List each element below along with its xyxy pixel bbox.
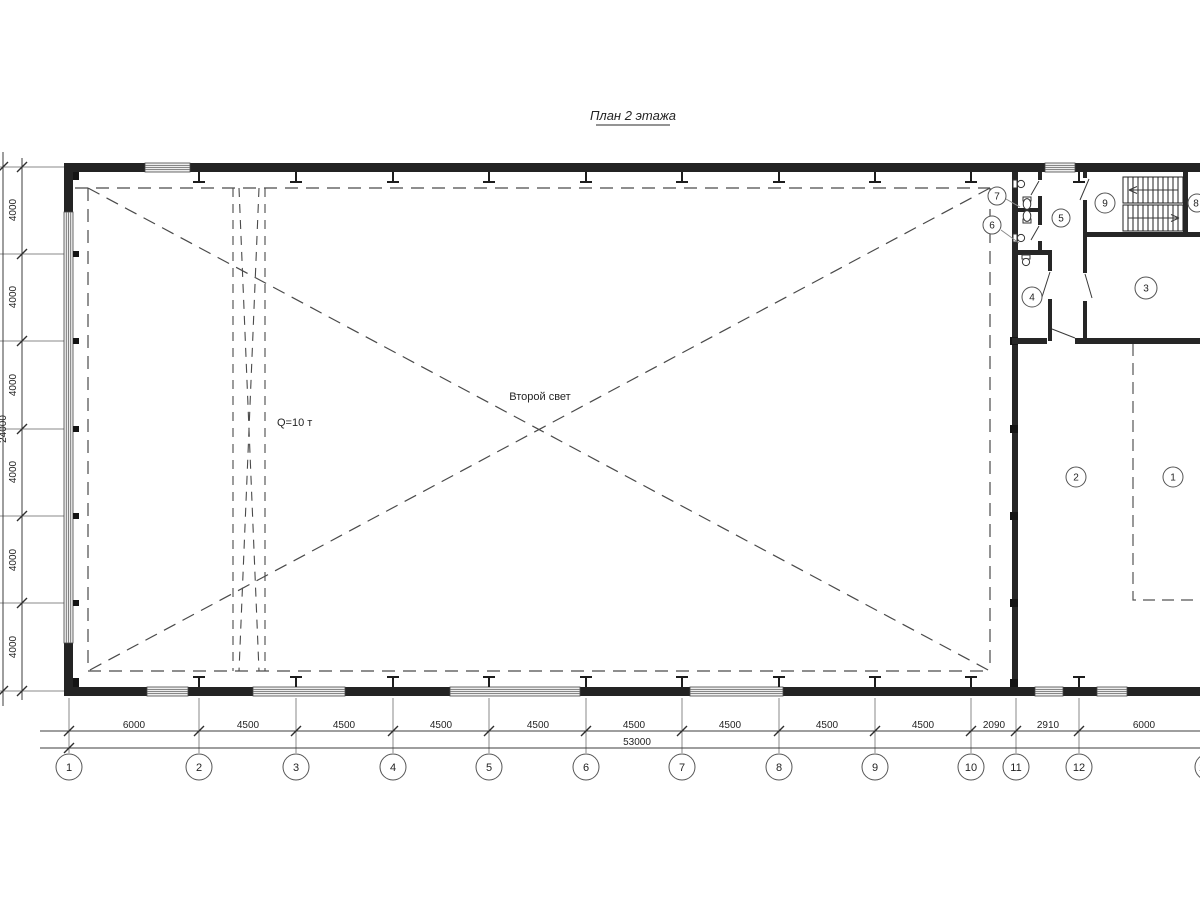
grid-bubble-label: 2: [196, 762, 202, 774]
grid-bubble-label: 1: [66, 762, 72, 774]
bottom-dim-label: 6000: [1133, 720, 1156, 731]
bottom-dim-label: 4500: [430, 720, 453, 731]
room-number: 4: [1029, 293, 1035, 304]
left-total-label: 24000: [0, 415, 9, 443]
toilet-icon: [1023, 199, 1031, 210]
room-number: 8: [1193, 199, 1199, 210]
room-number: 9: [1102, 199, 1108, 210]
grid-bubble-label: 5: [486, 762, 492, 774]
left-wall-top: [64, 163, 73, 212]
room-number: 1: [1170, 473, 1176, 484]
bottom-dim-label: 4500: [237, 720, 260, 731]
bottom-dim-label: 6000: [123, 720, 146, 731]
left-wall-bottom: [64, 643, 73, 696]
partition-wall: [1075, 338, 1200, 344]
bottom-total-label: 53000: [623, 737, 651, 748]
grid-bubble-label: 3: [293, 762, 299, 774]
floor-plan-drawing: План 2 этажа 4000 4000 4000 4000 4000 40…: [0, 0, 1200, 900]
left-grid-stubs: [0, 167, 64, 691]
bottom-dim-label: 4500: [816, 720, 839, 731]
void-label: Второй свет: [509, 391, 570, 403]
void-diagonals: [88, 188, 990, 671]
left-dim-label: 4000: [8, 460, 19, 483]
room-number: 7: [994, 192, 1000, 203]
staircase: [1123, 177, 1183, 231]
void-outline-dashed: [75, 188, 990, 671]
bottom-dim-label: 4500: [527, 720, 550, 731]
room4-wall: [1048, 299, 1052, 341]
grid-bubbles: 1 2 3 4 5 6 7 8 9 10 11 12 13: [56, 754, 1200, 780]
left-wall-pilasters: [73, 172, 79, 687]
room-number: 3: [1143, 284, 1149, 295]
bottom-dim-label: 4500: [333, 720, 356, 731]
sink-icon: [1017, 234, 1024, 241]
grid-bubble-label: 11: [1010, 762, 1021, 774]
room-number: 6: [989, 221, 995, 232]
title-text: План 2 этажа: [590, 108, 676, 123]
top-wall-columns: [193, 172, 1085, 182]
sink-icon: [1013, 180, 1017, 188]
grid-bubble-label: 9: [872, 762, 878, 774]
crane-cross: [239, 188, 259, 671]
wc-wall: [1038, 172, 1042, 180]
corridor-wall: [1083, 172, 1087, 178]
wc-partition: [1012, 250, 1052, 255]
bottom-dim-label: 2910: [1037, 720, 1060, 731]
grid-bubble-label: 12: [1073, 762, 1085, 774]
bottom-wall-columns: [193, 677, 1085, 687]
bottom-wall: [64, 687, 1200, 696]
bottom-dim-label: 4500: [719, 720, 742, 731]
stair-wall: [1183, 172, 1188, 232]
left-dim-label: 4000: [8, 285, 19, 308]
bottom-dim-label: 4500: [912, 720, 935, 731]
grid-bubble-label: 8: [776, 762, 782, 774]
bottom-dimension-block: 6000 4500 4500 4500 4500 4500 4500 4500 …: [40, 698, 1200, 753]
room4-wall: [1048, 255, 1052, 271]
toilet-icon: [1023, 211, 1031, 222]
corridor-wall: [1083, 301, 1087, 341]
crane-label: Q=10 т: [277, 417, 312, 429]
partition-wall: [1012, 338, 1047, 344]
floor-plan-canvas: План 2 этажа 4000 4000 4000 4000 4000 40…: [0, 0, 1200, 900]
left-dimension-block: 4000 4000 4000 4000 4000 4000 24000: [0, 152, 64, 706]
sink-icon: [1022, 258, 1029, 265]
right-block: [1010, 172, 1200, 687]
left-dim-label: 4000: [8, 198, 19, 221]
left-dim-label: 4000: [8, 635, 19, 658]
room-number: 5: [1058, 214, 1064, 225]
top-wall: [64, 163, 1200, 172]
building-envelope: [64, 163, 1200, 696]
stair-wall: [1083, 232, 1200, 237]
left-dim-label: 4000: [8, 548, 19, 571]
grid-bubble-label: 6: [583, 762, 589, 774]
hall-annotations: Второй свет Q=10 т: [75, 188, 990, 671]
grid-bubble-label: 7: [679, 762, 685, 774]
bottom-dim-label: 4500: [623, 720, 646, 731]
room-number: 2: [1073, 473, 1079, 484]
sink-icon: [1017, 180, 1024, 187]
left-dim-label: 4000: [8, 373, 19, 396]
drawing-title: План 2 этажа: [590, 108, 676, 125]
grid-bubble-label: 4: [390, 762, 396, 774]
bottom-dim-label: 2090: [983, 720, 1006, 731]
grid-bubble-label: 10: [965, 762, 977, 774]
